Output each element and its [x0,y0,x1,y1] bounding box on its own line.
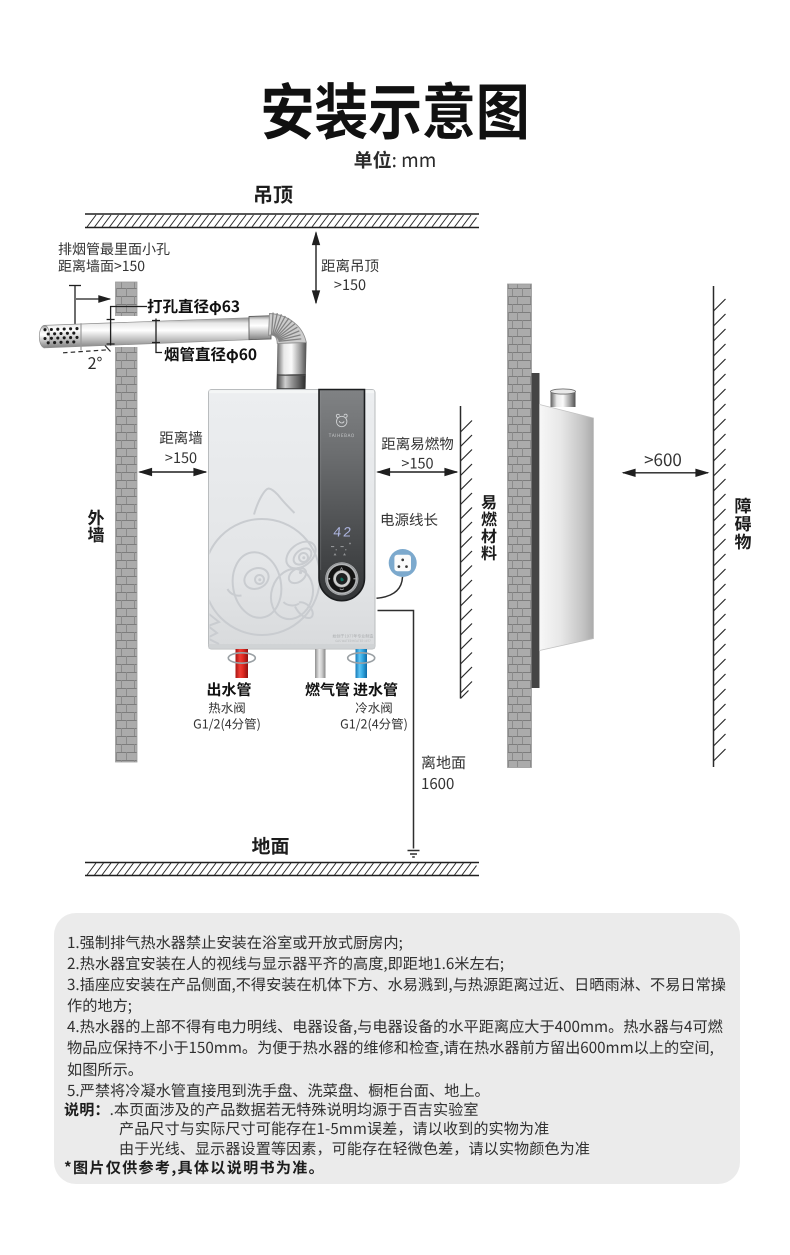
svg-text:>150: >150 [334,274,366,295]
svg-text:G1/2(4分管): G1/2(4分管) [340,714,408,733]
svg-text:>150: >150 [401,453,433,474]
svg-text:距离易燃物: 距离易燃物 [381,433,454,454]
svg-text:物: 物 [735,528,752,553]
svg-text:G1/2(4分管): G1/2(4分管) [193,714,261,733]
svg-text:吊顶: 吊顶 [253,179,293,208]
svg-text:离地面: 离地面 [421,752,466,773]
svg-text:>150: >150 [165,447,197,468]
svg-text:烟管直径φ60: 烟管直径φ60 [164,343,257,365]
svg-text:距离墙: 距离墙 [159,427,203,448]
svg-text:TAIHEBAO: TAIHEBAO [329,433,355,439]
svg-text:打孔直径φ63: 打孔直径φ63 [147,295,240,317]
svg-text:GAS WATER HEATER 1977: GAS WATER HEATER 1977 [335,639,371,643]
svg-text:1600: 1600 [421,773,454,794]
svg-text:距离吊顶: 距离吊顶 [321,255,379,276]
svg-text:地面: 地面 [251,832,289,859]
svg-text:2°: 2° [88,350,103,374]
svg-text:>600: >600 [644,446,682,471]
svg-text:42: 42 [332,526,353,542]
svg-text:距离墙面>150: 距离墙面>150 [58,256,145,276]
svg-text:墙: 墙 [88,521,105,546]
svg-text:料: 料 [481,540,497,564]
svg-text:电源线长: 电源线长 [380,509,438,530]
svg-text:燃气管: 燃气管 [305,679,350,700]
